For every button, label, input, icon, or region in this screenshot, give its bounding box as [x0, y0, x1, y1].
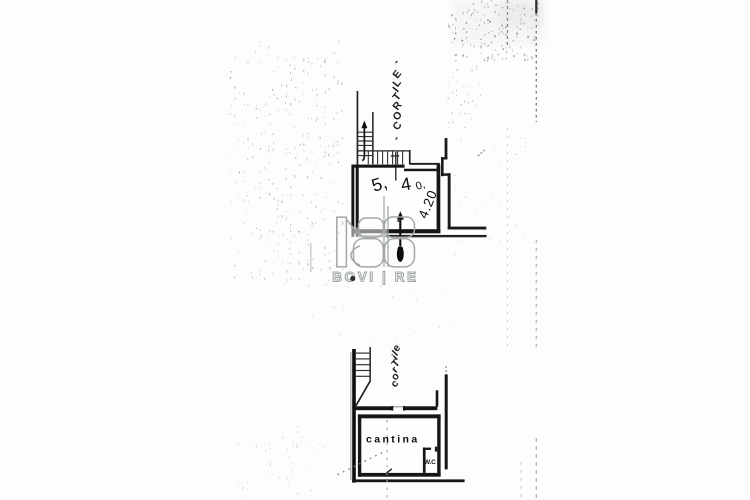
svg-text:BOVI | RE: BOVI | RE — [332, 270, 418, 285]
svg-text:W.C: W.C — [424, 459, 436, 466]
svg-text:cantina: cantina — [366, 434, 420, 446]
